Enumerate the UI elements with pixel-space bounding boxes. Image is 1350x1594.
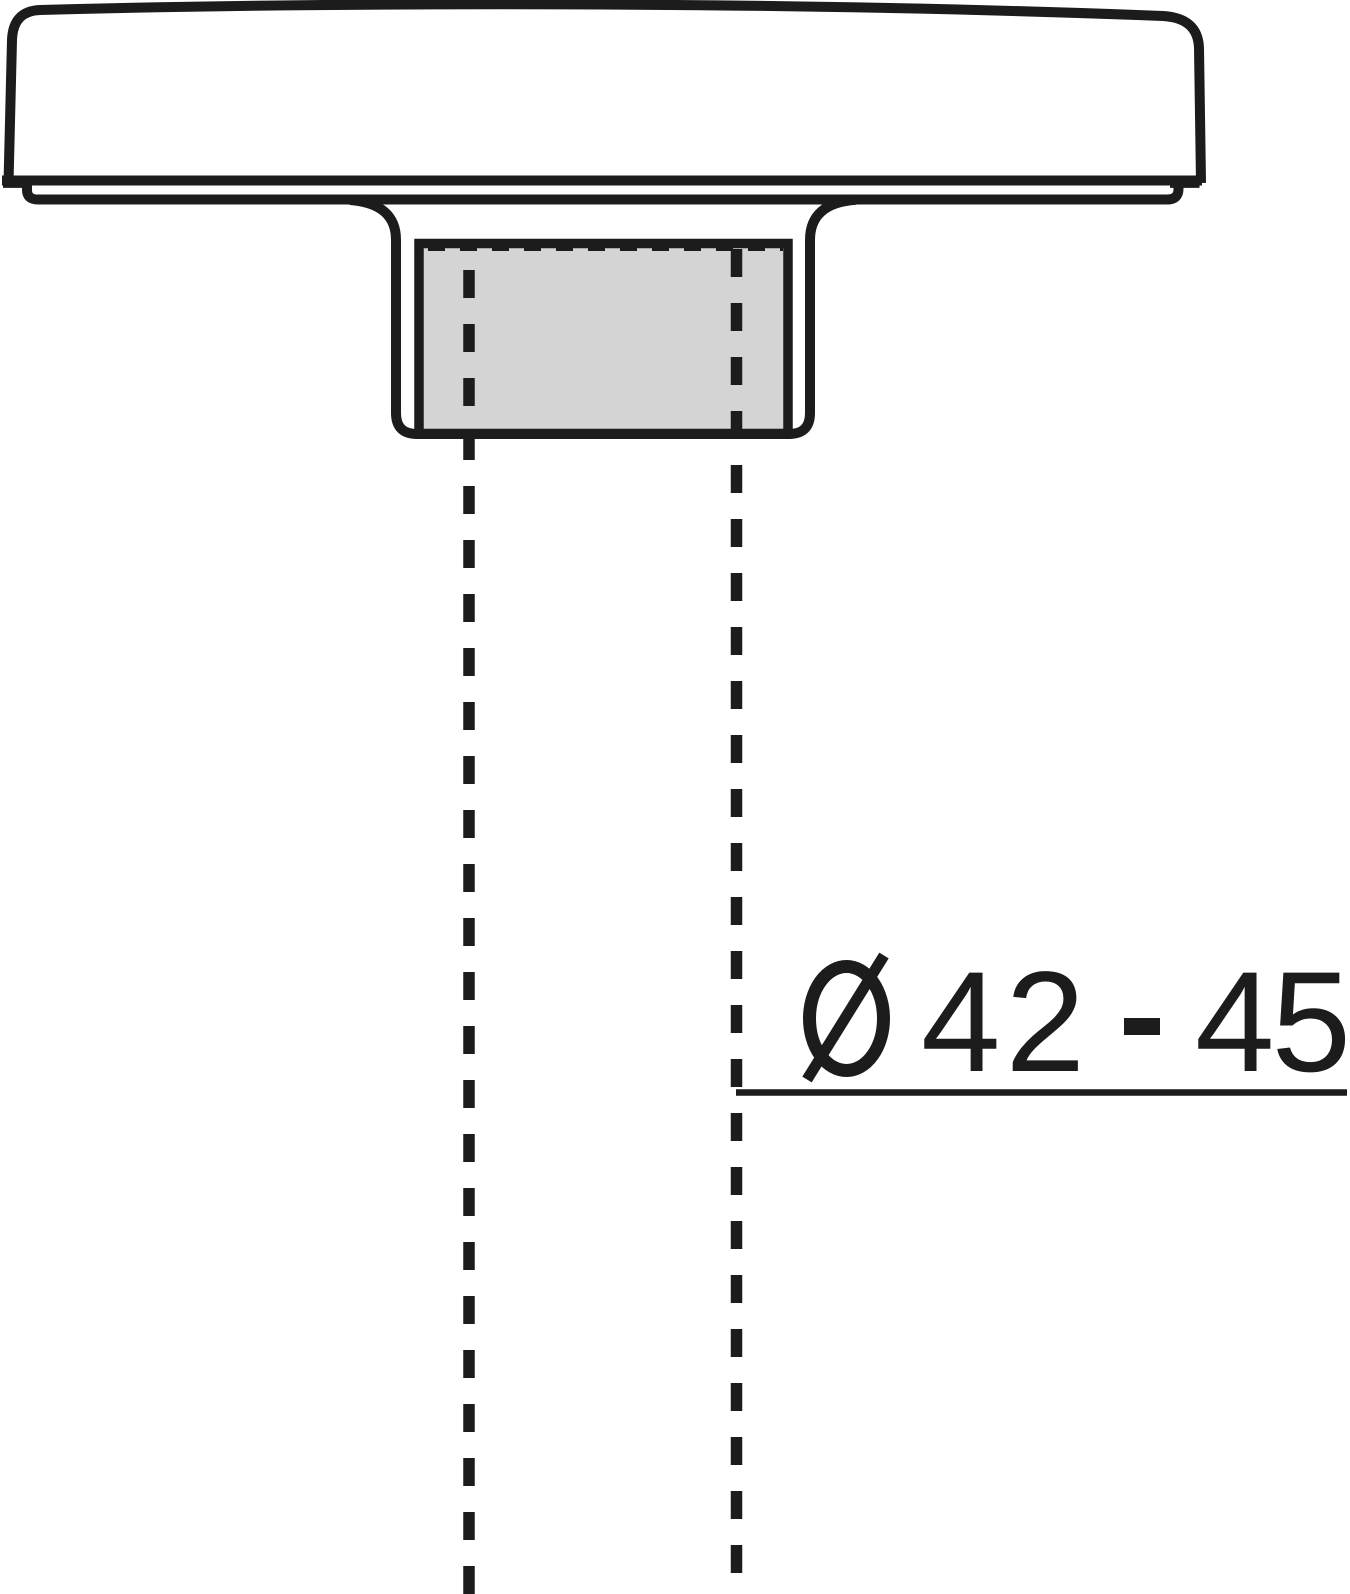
svg-text:45: 45 (1195, 943, 1348, 1102)
svg-text:42: 42 (921, 943, 1090, 1102)
